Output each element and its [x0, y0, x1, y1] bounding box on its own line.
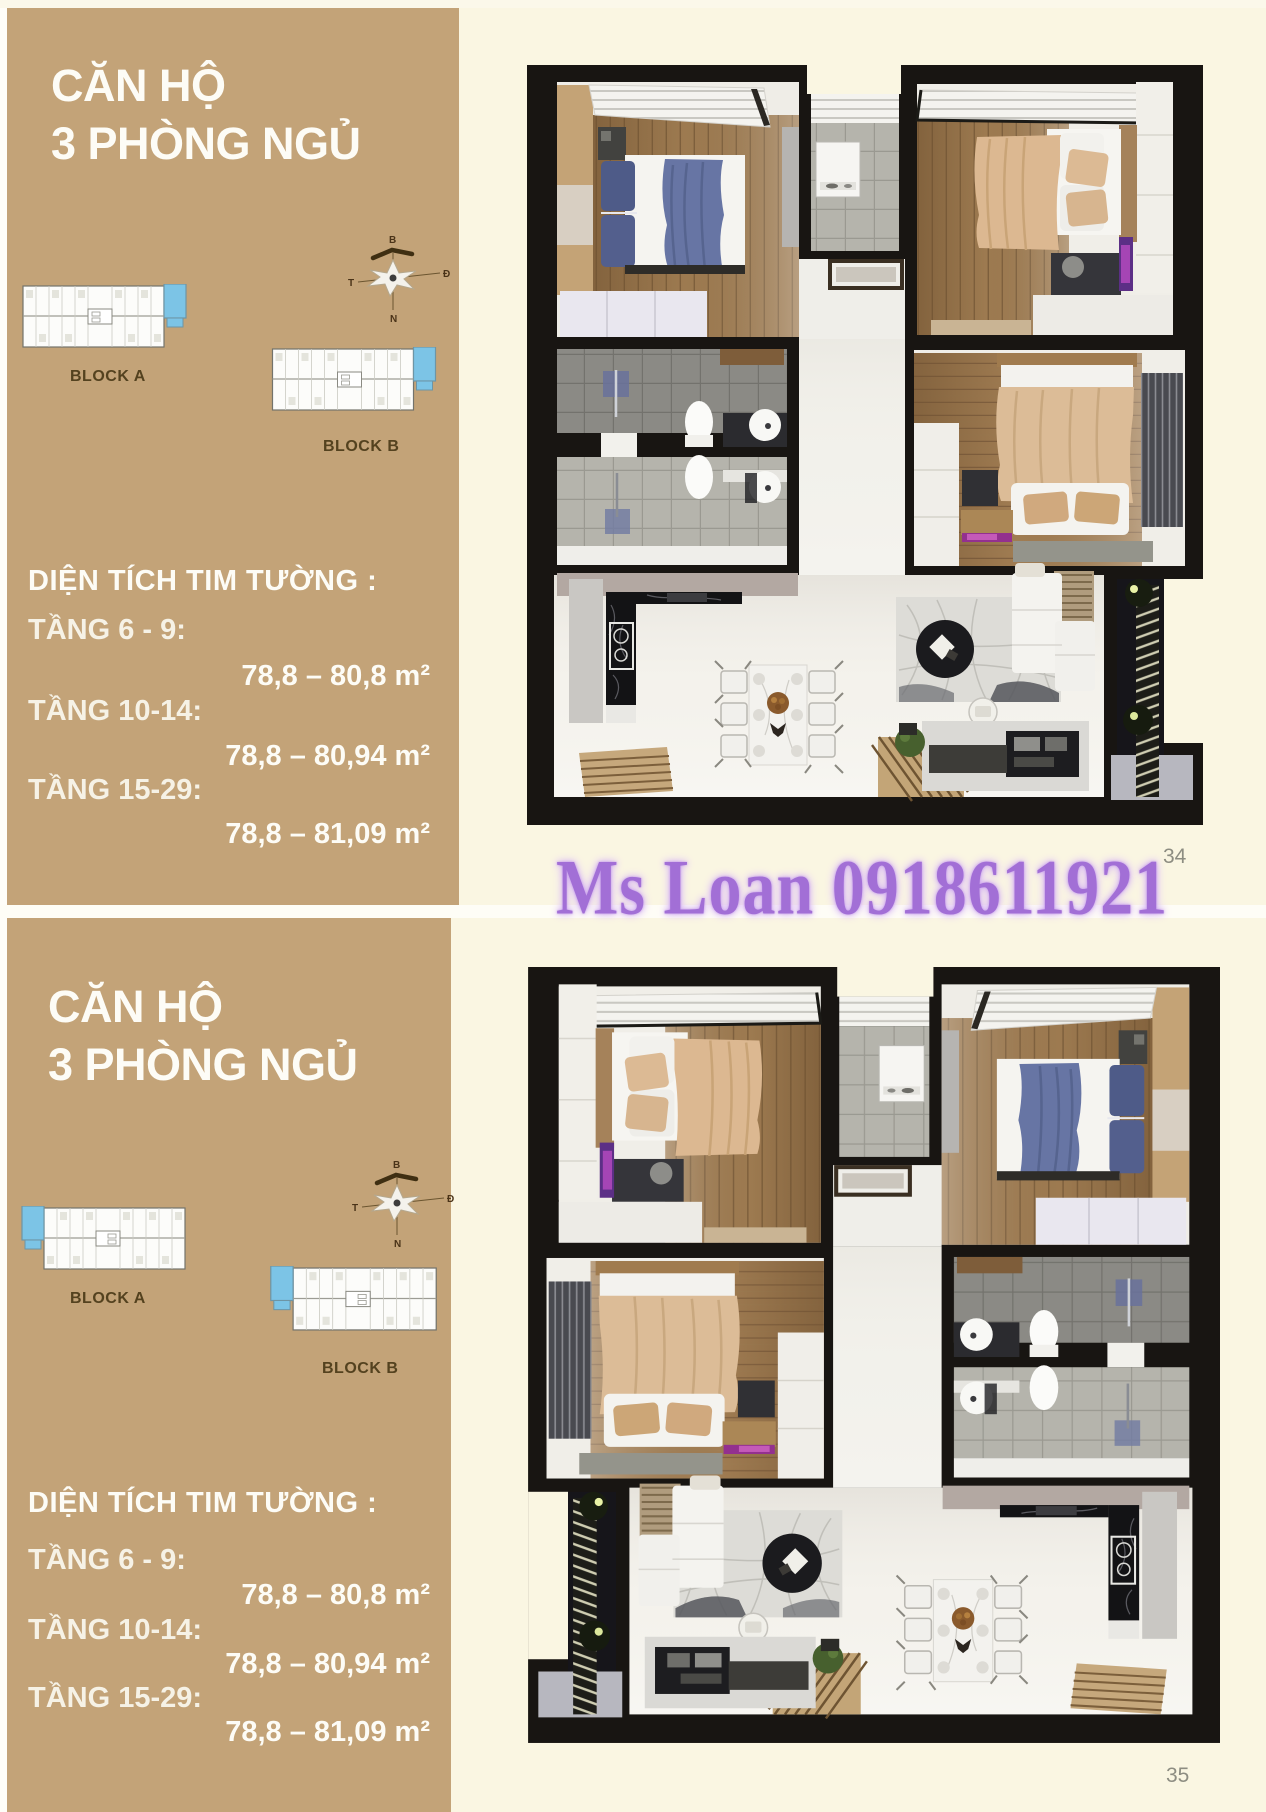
- svg-text:Đ: Đ: [447, 1194, 454, 1205]
- svg-text:T: T: [348, 278, 354, 289]
- svg-text:T: T: [352, 1203, 358, 1214]
- svg-text:B: B: [393, 1160, 400, 1171]
- svg-text:B: B: [389, 235, 396, 246]
- svg-text:N: N: [390, 314, 397, 325]
- svg-text:Đ: Đ: [443, 269, 450, 280]
- svg-text:N: N: [394, 1239, 401, 1250]
